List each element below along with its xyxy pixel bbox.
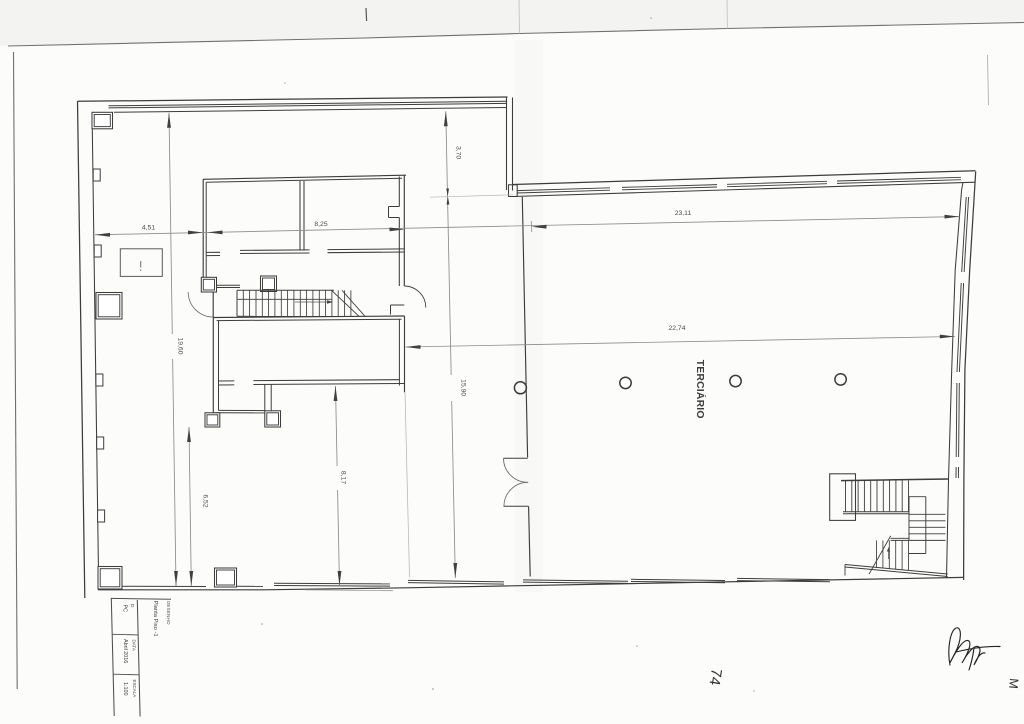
svg-text:ESCALA: ESCALA [132, 680, 137, 698]
svg-text:74: 74 [705, 667, 724, 686]
svg-text:6,52: 6,52 [202, 494, 209, 507]
svg-text:D: D [129, 604, 135, 608]
svg-text:15,90: 15,90 [460, 379, 467, 396]
svg-text:8,17: 8,17 [339, 471, 346, 484]
svg-text:3,70: 3,70 [455, 146, 462, 159]
svg-text:4,51: 4,51 [142, 224, 155, 231]
svg-text:22,74: 22,74 [668, 325, 685, 332]
svg-text:DATA: DATA [131, 640, 136, 651]
svg-text:23,11: 23,11 [675, 210, 692, 217]
svg-text:8,25: 8,25 [314, 221, 327, 228]
svg-text:M: M [1006, 678, 1021, 690]
svg-text:Planta Piso -1: Planta Piso -1 [152, 601, 158, 637]
svg-text:PC: PC [122, 605, 128, 613]
svg-text:1:100: 1:100 [122, 682, 128, 696]
svg-text:DESENHO: DESENHO [166, 601, 171, 625]
svg-text:19,60: 19,60 [177, 337, 184, 354]
svg-text:Abril 2016: Abril 2016 [122, 639, 128, 663]
svg-text:TERCIÁRIO: TERCIÁRIO [694, 360, 707, 419]
